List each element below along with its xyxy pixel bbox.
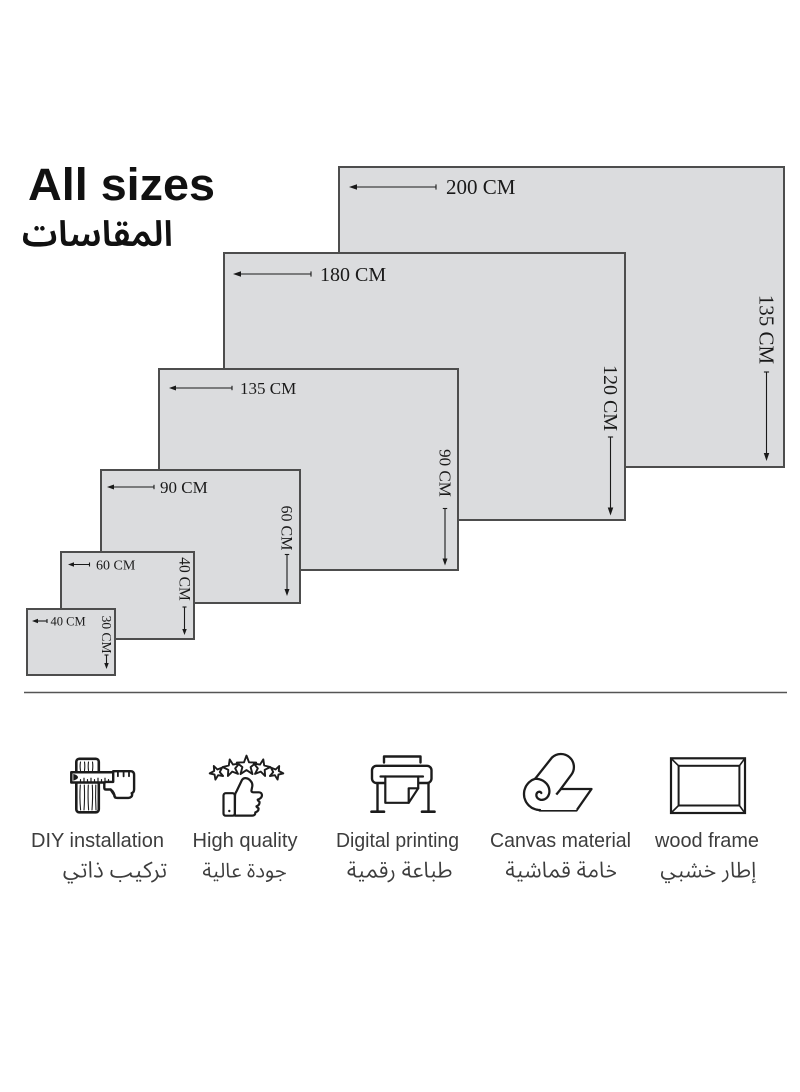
svg-text:135 CM: 135 CM xyxy=(755,295,779,365)
svg-text:180 CM: 180 CM xyxy=(320,264,386,286)
svg-text:120 CM: 120 CM xyxy=(599,365,621,431)
svg-text:High quality: High quality xyxy=(193,830,298,852)
svg-text:Canvas material: Canvas material xyxy=(490,830,631,852)
svg-text:wood frame: wood frame xyxy=(654,830,759,852)
svg-text:90 CM: 90 CM xyxy=(160,478,208,497)
svg-text:Digital printing: Digital printing xyxy=(336,830,459,852)
svg-text:DIY installation: DIY installation xyxy=(31,830,164,852)
svg-text:60 CM: 60 CM xyxy=(96,559,136,574)
svg-text:90 CM: 90 CM xyxy=(435,449,454,497)
svg-text:40 CM: 40 CM xyxy=(51,615,86,629)
svg-text:200 CM: 200 CM xyxy=(446,175,516,199)
svg-text:30 CM: 30 CM xyxy=(99,616,114,654)
svg-text:40 CM: 40 CM xyxy=(175,557,192,601)
svg-text:60 CM: 60 CM xyxy=(278,506,295,551)
svg-text:All sizes: All sizes xyxy=(28,159,215,210)
svg-text:135 CM: 135 CM xyxy=(240,379,296,398)
